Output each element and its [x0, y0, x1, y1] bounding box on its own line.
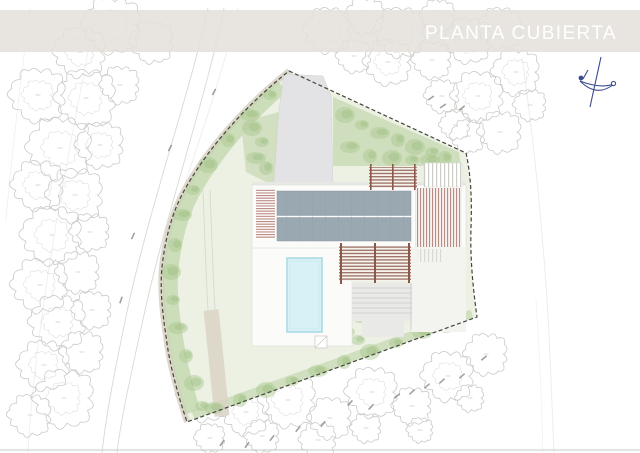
shrub-tuft-core — [184, 351, 192, 359]
tree-inner-branches — [462, 82, 491, 110]
shrub-tuft-core — [367, 347, 378, 356]
plan-sheet: PLANTA CUBIERTA — [0, 0, 640, 453]
tree-outline — [438, 111, 469, 141]
shrub-tuft-core — [253, 154, 264, 161]
shrub-tuft-core — [264, 163, 272, 171]
shrub-tuft-core — [268, 91, 276, 97]
elevation-label-mark — [409, 389, 415, 395]
contour-line — [536, 300, 543, 453]
shrub-tuft-core — [368, 151, 376, 159]
pergola-post — [370, 164, 372, 190]
shrub-tuft-core — [247, 111, 258, 118]
pergola-post — [408, 243, 410, 284]
shrub-tuft-core — [410, 156, 418, 162]
shrub-tuft-core — [389, 153, 400, 162]
tree-inner-branches — [21, 80, 53, 111]
shrub-tuft-core — [427, 156, 438, 163]
elevation-label-mark — [131, 232, 135, 239]
tree-outline — [71, 292, 111, 331]
tree-outline — [99, 67, 139, 106]
shrub-tuft-core — [260, 138, 268, 144]
site-parcel — [161, 71, 477, 422]
tree-outline — [512, 90, 546, 122]
elevation-label-mark — [440, 103, 447, 108]
right-louver-panel — [415, 188, 462, 247]
shrub-tuft-core — [249, 123, 260, 132]
shrub-tuft-core — [205, 160, 216, 169]
shrub-tuft-core — [179, 211, 190, 218]
gray-louver-panel — [424, 163, 462, 187]
tree-outline — [54, 251, 99, 294]
north-arrow-icon — [579, 57, 616, 107]
shrub-tuft-core — [191, 186, 199, 192]
tree-outline — [349, 414, 380, 444]
page-title: PLANTA CUBIERTA — [425, 23, 617, 44]
roof-panel-seams — [277, 191, 411, 241]
left-louver-panel — [256, 189, 275, 239]
tree-outline — [423, 80, 459, 114]
shrub-tuft-core — [396, 135, 404, 143]
shrub-tuft-core — [394, 339, 402, 345]
tree-inner-branches — [34, 219, 68, 252]
tree-outline — [10, 160, 64, 212]
elevation-label-mark — [439, 378, 445, 384]
tree-outline — [9, 258, 67, 314]
tree-outline — [476, 111, 521, 154]
shrub-tuft-core — [356, 336, 364, 342]
terrace-louver-strip — [417, 249, 443, 262]
contour-line — [28, 8, 96, 453]
shrub-tuft-core — [191, 378, 202, 387]
shrub-tuft-core — [377, 129, 388, 136]
tree-inner-branches — [432, 362, 461, 390]
shrub-tuft-core — [443, 153, 451, 161]
elevation-label-mark — [481, 355, 487, 361]
tree-inner-branches — [356, 378, 385, 406]
tree-outline — [420, 351, 474, 403]
shrub-tuft-core — [171, 296, 179, 302]
pergola-post — [340, 243, 342, 284]
tree-inner-branches — [41, 307, 73, 338]
pergola-post — [392, 164, 394, 190]
tree-outline — [490, 49, 539, 96]
site-plan-drawing: PLANTA CUBIERTA — [0, 0, 640, 453]
tree-outline — [344, 367, 398, 419]
tree-inner-branches — [68, 82, 102, 115]
terrace-steps-upper — [352, 283, 412, 321]
tree-outline — [406, 418, 433, 444]
tree-outline — [58, 331, 103, 374]
tree-outline — [462, 333, 507, 376]
elevation-label-mark — [269, 435, 275, 442]
shrub-tuft-core — [430, 148, 438, 154]
swimming-pool — [287, 258, 322, 332]
tree-inner-branches — [86, 133, 113, 159]
shrub-tuft-core — [226, 135, 234, 143]
shrub-tuft-core — [342, 110, 353, 119]
shrub-tuft-core — [211, 404, 222, 411]
elevation-label-mark — [428, 95, 435, 100]
shrub-tuft-core — [347, 143, 358, 150]
tree-outline — [298, 423, 336, 453]
shrub-tuft-core — [173, 240, 181, 248]
tree-outline — [16, 340, 70, 392]
pergola-post — [374, 243, 376, 284]
tree-outline — [19, 206, 82, 266]
pergola-post — [414, 164, 416, 190]
elevation-label-mark — [295, 426, 301, 432]
contour-line — [522, 58, 554, 453]
tree-outline — [306, 397, 351, 440]
shrub-tuft-core — [360, 121, 368, 127]
elevation-label-mark — [119, 296, 123, 303]
tree-inner-branches — [502, 60, 529, 86]
tree-outline — [7, 68, 65, 124]
elevation-label-mark — [368, 404, 374, 410]
tree-outline — [6, 394, 51, 437]
shrub-tuft-core — [175, 324, 186, 331]
tree-inner-branches — [28, 351, 57, 379]
shrub-tuft-core — [290, 377, 298, 383]
terrace-steps-lower — [362, 321, 404, 337]
shrub-tuft-core — [168, 267, 179, 276]
shrub-tuft-core — [412, 142, 423, 151]
tree-outline — [44, 168, 102, 224]
